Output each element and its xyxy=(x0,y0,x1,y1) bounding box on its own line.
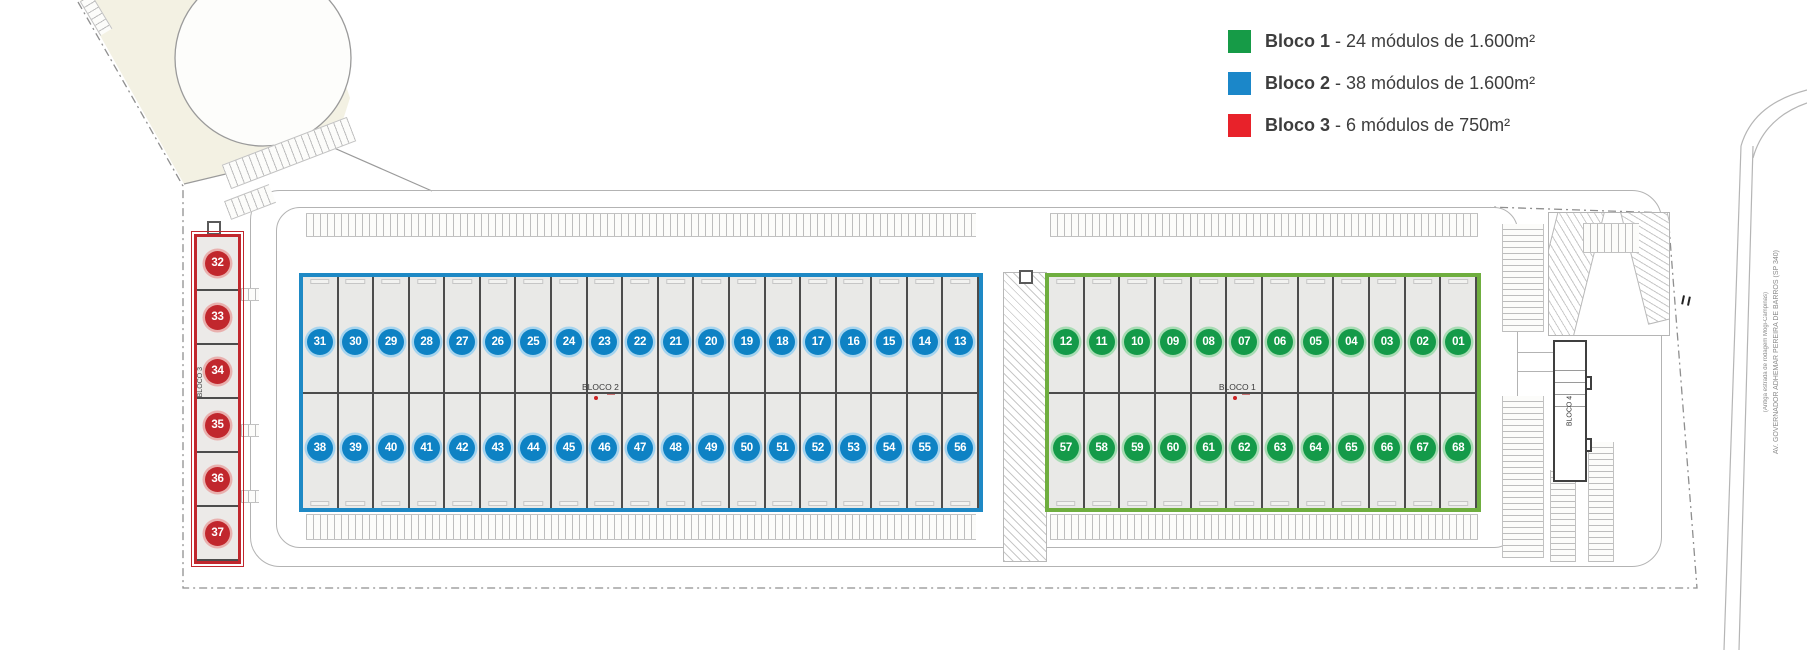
module-cell: 58 xyxy=(1085,394,1119,509)
module-number-badge: 18 xyxy=(769,329,795,355)
dock-door xyxy=(1270,279,1290,284)
module-cell: 49 xyxy=(694,394,728,509)
module-column: 1158 xyxy=(1085,277,1121,508)
module-column: 0168 xyxy=(1441,277,1477,508)
dock-door xyxy=(381,501,400,506)
dock-door xyxy=(346,501,365,506)
dock-door xyxy=(1092,279,1112,284)
module-number-badge: 62 xyxy=(1231,435,1257,461)
module-cell: 43 xyxy=(481,394,515,509)
module-cell: 59 xyxy=(1120,394,1154,509)
survey-dash xyxy=(607,394,615,395)
dock-door xyxy=(452,501,471,506)
dock-door xyxy=(1341,501,1361,506)
module-cell: 17 xyxy=(801,277,835,394)
module-cell: 18 xyxy=(766,277,800,394)
dock-door xyxy=(915,279,934,284)
legend: Bloco 1 - 24 módulos de 1.600m² Bloco 2 … xyxy=(1228,30,1535,156)
module-number-badge: 32 xyxy=(205,251,230,276)
module-column: 3138 xyxy=(303,277,339,508)
block-name-label: BLOCO 2 xyxy=(582,382,619,392)
module-cell: 56 xyxy=(943,394,977,509)
module-column: 2247 xyxy=(623,277,659,508)
module-number-badge: 61 xyxy=(1196,435,1222,461)
bloco4-label: BLOCO 4 xyxy=(1567,396,1574,426)
bloco4-building: BLOCO 4 xyxy=(1553,340,1587,482)
dock-door xyxy=(737,279,756,284)
legend-swatch-bloco3 xyxy=(1228,114,1251,137)
block-name-label: BLOCO 1 xyxy=(1219,382,1256,392)
module-cell: 45 xyxy=(552,394,586,509)
module-cell: 54 xyxy=(872,394,906,509)
module-cell: 36 xyxy=(197,453,238,507)
module-cell: 46 xyxy=(588,394,622,509)
access-road-line xyxy=(1518,352,1554,353)
dock-door xyxy=(1163,279,1183,284)
legend-item-bloco2: Bloco 2 - 38 módulos de 1.600m² xyxy=(1228,72,1535,95)
module-cell: 07 xyxy=(1227,277,1261,394)
dock-door xyxy=(524,279,543,284)
module-column: 1257 xyxy=(1049,277,1085,508)
dock-door xyxy=(1306,279,1326,284)
module-cell: 57 xyxy=(1049,394,1083,509)
module-cell: 14 xyxy=(908,277,942,394)
module-column: 0267 xyxy=(1406,277,1442,508)
dock-door xyxy=(417,279,436,284)
dock-door xyxy=(452,279,471,284)
module-cell: 21 xyxy=(659,277,693,394)
survey-dash xyxy=(1242,394,1250,395)
dock-door xyxy=(1056,501,1076,506)
module-cell: 67 xyxy=(1406,394,1440,509)
dock-door xyxy=(915,501,934,506)
highway-name-label: AV. GOVERNADOR ADHEMAR PEREIRA DE BARROS… xyxy=(1773,250,1780,454)
highway-lines xyxy=(1724,146,1753,650)
dock-door xyxy=(1377,279,1397,284)
module-number-badge: 20 xyxy=(698,329,724,355)
parking-strip xyxy=(306,213,976,237)
module-number-badge: 26 xyxy=(485,329,511,355)
module-number-badge: 10 xyxy=(1124,329,1150,355)
module-number-badge: 37 xyxy=(205,521,230,546)
parking-strip xyxy=(1583,223,1639,253)
dock-door xyxy=(1127,279,1147,284)
dock-door xyxy=(381,279,400,284)
highway-subtitle-label: (Antiga estrada de rodagem Mogi-Campinas… xyxy=(1763,292,1769,412)
module-cell: 66 xyxy=(1370,394,1404,509)
dock-door xyxy=(808,501,827,506)
dock-door xyxy=(950,279,969,284)
legend-swatch-bloco1 xyxy=(1228,30,1251,53)
block-name-label: BLOCO 3 xyxy=(197,367,204,397)
module-cell: 19 xyxy=(730,277,764,394)
building-tab xyxy=(1585,376,1592,390)
module-number-badge: 17 xyxy=(805,329,831,355)
module-number-badge: 44 xyxy=(520,435,546,461)
module-cell: 60 xyxy=(1156,394,1190,509)
module-number-badge: 14 xyxy=(912,329,938,355)
module-column: 2742 xyxy=(445,277,481,508)
module-column: 2049 xyxy=(694,277,730,508)
module-number-badge: 25 xyxy=(520,329,546,355)
module-cell: 48 xyxy=(659,394,693,509)
survey-dot xyxy=(1233,396,1237,400)
module-cell: 26 xyxy=(481,277,515,394)
module-column: 2841 xyxy=(410,277,446,508)
module-number-badge: 50 xyxy=(734,435,760,461)
module-number-badge: 46 xyxy=(591,435,617,461)
module-cell: 64 xyxy=(1299,394,1333,509)
module-column: 0465 xyxy=(1334,277,1370,508)
module-number-badge: 19 xyxy=(734,329,760,355)
dock-door xyxy=(1092,501,1112,506)
module-number-badge: 43 xyxy=(485,435,511,461)
module-cell: 16 xyxy=(837,277,871,394)
dock-door xyxy=(1234,279,1254,284)
dock-door xyxy=(1413,279,1433,284)
module-cell: 35 xyxy=(197,399,238,453)
module-number-badge: 67 xyxy=(1410,435,1436,461)
module-column: 0762 xyxy=(1227,277,1263,508)
module-number-badge: 12 xyxy=(1053,329,1079,355)
dock-door xyxy=(1413,501,1433,506)
parking-strip xyxy=(306,514,976,540)
hatched-ramp-strip xyxy=(1003,272,1047,562)
dock-door xyxy=(1306,501,1326,506)
module-cell: 40 xyxy=(374,394,408,509)
bloco3-block: 323334353637BLOCO 3 xyxy=(194,234,241,564)
module-cell: 65 xyxy=(1334,394,1368,509)
module-number-badge: 49 xyxy=(698,435,724,461)
module-number-badge: 52 xyxy=(805,435,831,461)
legend-item-bloco1: Bloco 1 - 24 módulos de 1.600m² xyxy=(1228,30,1535,53)
module-number-badge: 55 xyxy=(912,435,938,461)
parking-strip xyxy=(1050,213,1478,237)
module-column: 1950 xyxy=(730,277,766,508)
guardhouse-square xyxy=(207,221,221,235)
dock-comb xyxy=(241,288,259,301)
dock-door xyxy=(488,501,507,506)
legend-item-bloco3: Bloco 3 - 6 módulos de 750m² xyxy=(1228,114,1535,137)
dock-door xyxy=(524,501,543,506)
module-number-badge: 51 xyxy=(769,435,795,461)
module-number-badge: 33 xyxy=(205,305,230,330)
module-number-badge: 57 xyxy=(1053,435,1079,461)
parking-strip xyxy=(1502,224,1544,332)
dock-door xyxy=(630,501,649,506)
parking-strip xyxy=(1502,396,1544,558)
module-column: 0564 xyxy=(1299,277,1335,508)
site-plan: BLOCO 4 31383039294028412742264325442445… xyxy=(0,0,1807,650)
module-number-badge: 41 xyxy=(414,435,440,461)
dock-door xyxy=(1163,501,1183,506)
dock-door xyxy=(346,279,365,284)
module-cell: 47 xyxy=(623,394,657,509)
module-number-badge: 22 xyxy=(627,329,653,355)
module-cell: 62 xyxy=(1227,394,1261,509)
dock-door xyxy=(950,501,969,506)
module-cell: 68 xyxy=(1441,394,1475,509)
dock-door xyxy=(595,501,614,506)
module-cell: 33 xyxy=(197,291,238,345)
module-number-badge: 30 xyxy=(342,329,368,355)
module-column: 2346 xyxy=(588,277,624,508)
module-cell: 24 xyxy=(552,277,586,394)
module-cell: 05 xyxy=(1299,277,1333,394)
module-number-badge: 27 xyxy=(449,329,475,355)
dock-door xyxy=(701,501,720,506)
module-column: 2544 xyxy=(516,277,552,508)
parking-strip xyxy=(1550,470,1576,562)
module-number-badge: 05 xyxy=(1303,329,1329,355)
module-cell: 12 xyxy=(1049,277,1083,394)
dock-door xyxy=(559,279,578,284)
module-number-badge: 31 xyxy=(307,329,333,355)
module-cell: 38 xyxy=(303,394,337,509)
building-tab xyxy=(1585,438,1592,452)
module-column: 1554 xyxy=(872,277,908,508)
module-number-badge: 40 xyxy=(378,435,404,461)
module-number-badge: 59 xyxy=(1124,435,1150,461)
module-cell: 61 xyxy=(1192,394,1226,509)
dock-door xyxy=(1270,501,1290,506)
dock-door xyxy=(879,279,898,284)
module-cell: 04 xyxy=(1334,277,1368,394)
module-number-badge: 08 xyxy=(1196,329,1222,355)
module-cell: 30 xyxy=(339,277,373,394)
module-number-badge: 03 xyxy=(1374,329,1400,355)
parking-strip xyxy=(1050,514,1478,540)
module-cell: 32 xyxy=(197,237,238,291)
dock-door xyxy=(737,501,756,506)
module-column: 2940 xyxy=(374,277,410,508)
module-column: 3039 xyxy=(339,277,375,508)
module-cell: 37 xyxy=(197,507,238,561)
highway-curve-lines xyxy=(1741,90,1807,158)
dock-door xyxy=(1234,501,1254,506)
module-cell: 25 xyxy=(516,277,550,394)
survey-dot xyxy=(594,396,598,400)
bloco1-block: 1257115810590960086107620663056404650366… xyxy=(1045,273,1481,512)
module-cell: 02 xyxy=(1406,277,1440,394)
dock-door xyxy=(310,501,329,506)
module-number-badge: 36 xyxy=(205,467,230,492)
module-column: 0366 xyxy=(1370,277,1406,508)
dock-door xyxy=(595,279,614,284)
module-column: 2643 xyxy=(481,277,517,508)
module-number-badge: 47 xyxy=(627,435,653,461)
module-number-badge: 66 xyxy=(1374,435,1400,461)
module-number-badge: 16 xyxy=(840,329,866,355)
legend-label-bloco2: Bloco 2 - 38 módulos de 1.600m² xyxy=(1265,73,1535,94)
module-cell: 01 xyxy=(1441,277,1475,394)
module-number-badge: 28 xyxy=(414,329,440,355)
parking-strip xyxy=(1588,442,1614,562)
module-number-badge: 02 xyxy=(1410,329,1436,355)
module-number-badge: 34 xyxy=(205,359,230,384)
module-cell: 39 xyxy=(339,394,373,509)
module-number-badge: 38 xyxy=(307,435,333,461)
module-number-badge: 54 xyxy=(876,435,902,461)
module-cell: 55 xyxy=(908,394,942,509)
module-column: 0861 xyxy=(1192,277,1228,508)
module-cell: 23 xyxy=(588,277,622,394)
dock-door xyxy=(310,279,329,284)
module-cell: 08 xyxy=(1192,277,1226,394)
dock-comb xyxy=(241,490,259,503)
dock-door xyxy=(879,501,898,506)
dock-comb xyxy=(241,424,259,437)
dock-door xyxy=(1448,279,1468,284)
module-cell: 15 xyxy=(872,277,906,394)
dock-door xyxy=(666,279,685,284)
module-number-badge: 60 xyxy=(1160,435,1186,461)
module-cell: 51 xyxy=(766,394,800,509)
module-column: 0663 xyxy=(1263,277,1299,508)
dock-door xyxy=(1056,279,1076,284)
module-number-badge: 23 xyxy=(591,329,617,355)
dock-door xyxy=(844,279,863,284)
legend-label-bloco3: Bloco 3 - 6 módulos de 750m² xyxy=(1265,115,1510,136)
module-number-badge: 07 xyxy=(1231,329,1257,355)
bloco2-block: 3138303929402841274226432544244523462247… xyxy=(299,273,983,512)
legend-label-bloco1: Bloco 1 - 24 módulos de 1.600m² xyxy=(1265,31,1535,52)
module-cell: 09 xyxy=(1156,277,1190,394)
module-cell: 53 xyxy=(837,394,871,509)
module-cell: 10 xyxy=(1120,277,1154,394)
dock-door xyxy=(1199,501,1219,506)
module-number-badge: 11 xyxy=(1089,329,1115,355)
module-cell: 06 xyxy=(1263,277,1297,394)
module-cell: 63 xyxy=(1263,394,1297,509)
module-column: 1851 xyxy=(766,277,802,508)
dock-door xyxy=(1448,501,1468,506)
module-number-badge: 06 xyxy=(1267,329,1293,355)
module-cell: 11 xyxy=(1085,277,1119,394)
dock-door xyxy=(1377,501,1397,506)
module-number-badge: 48 xyxy=(663,435,689,461)
module-number-badge: 09 xyxy=(1160,329,1186,355)
module-column: 0960 xyxy=(1156,277,1192,508)
module-cell: 50 xyxy=(730,394,764,509)
module-number-badge: 04 xyxy=(1338,329,1364,355)
legend-swatch-bloco2 xyxy=(1228,72,1251,95)
module-cell: 52 xyxy=(801,394,835,509)
module-cell: 29 xyxy=(374,277,408,394)
module-number-badge: 42 xyxy=(449,435,475,461)
module-cell: 27 xyxy=(445,277,479,394)
parking-lot xyxy=(1548,212,1670,336)
module-cell: 41 xyxy=(410,394,444,509)
module-cell: 22 xyxy=(623,277,657,394)
module-number-badge: 56 xyxy=(947,435,973,461)
dock-door xyxy=(1341,279,1361,284)
module-column: 1356 xyxy=(943,277,979,508)
module-number-badge: 64 xyxy=(1303,435,1329,461)
module-cell: 03 xyxy=(1370,277,1404,394)
dock-door xyxy=(773,501,792,506)
dock-door xyxy=(1127,501,1147,506)
module-number-badge: 29 xyxy=(378,329,404,355)
module-column: 2148 xyxy=(659,277,695,508)
dock-door xyxy=(488,279,507,284)
module-cell: 31 xyxy=(303,277,337,394)
module-number-badge: 45 xyxy=(556,435,582,461)
guardhouse-square xyxy=(1019,270,1033,284)
module-number-badge: 63 xyxy=(1267,435,1293,461)
dock-door xyxy=(417,501,436,506)
module-number-badge: 13 xyxy=(947,329,973,355)
dock-door xyxy=(808,279,827,284)
module-column: 1059 xyxy=(1120,277,1156,508)
dock-door xyxy=(559,501,578,506)
dock-door xyxy=(666,501,685,506)
dock-door xyxy=(844,501,863,506)
dock-door xyxy=(701,279,720,284)
module-column: 1653 xyxy=(837,277,873,508)
module-cell: 20 xyxy=(694,277,728,394)
module-number-badge: 68 xyxy=(1445,435,1471,461)
dock-door xyxy=(1199,279,1219,284)
module-number-badge: 01 xyxy=(1445,329,1471,355)
dock-door xyxy=(630,279,649,284)
module-column: 1455 xyxy=(908,277,944,508)
module-number-badge: 35 xyxy=(205,413,230,438)
module-number-badge: 65 xyxy=(1338,435,1364,461)
module-number-badge: 24 xyxy=(556,329,582,355)
access-road-line xyxy=(1518,371,1554,372)
module-cell: 44 xyxy=(516,394,550,509)
dock-door xyxy=(773,279,792,284)
module-cell: 42 xyxy=(445,394,479,509)
module-number-badge: 58 xyxy=(1089,435,1115,461)
module-number-badge: 21 xyxy=(663,329,689,355)
module-column: 2445 xyxy=(552,277,588,508)
module-number-badge: 15 xyxy=(876,329,902,355)
module-number-badge: 39 xyxy=(342,435,368,461)
module-cell: 13 xyxy=(943,277,977,394)
module-column: 1752 xyxy=(801,277,837,508)
module-cell: 28 xyxy=(410,277,444,394)
module-number-badge: 53 xyxy=(840,435,866,461)
